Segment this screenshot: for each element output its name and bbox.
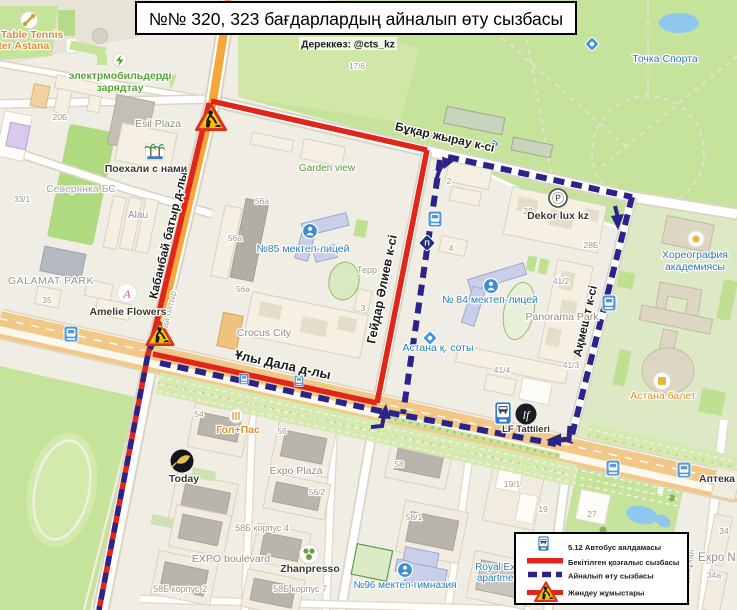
svg-text:A: A bbox=[122, 287, 131, 301]
svg-text:33/1: 33/1 bbox=[14, 194, 31, 204]
svg-text:54: 54 bbox=[194, 409, 204, 419]
svg-text:41/2: 41/2 bbox=[553, 276, 570, 286]
svg-text:Garden view: Garden view bbox=[299, 163, 356, 174]
svg-text:3: 3 bbox=[361, 303, 366, 313]
svg-text:58Б корпус 4: 58Б корпус 4 bbox=[235, 523, 289, 533]
svg-text:Астана қ. соты: Астана қ. соты bbox=[402, 342, 473, 354]
svg-text:Alau: Alau bbox=[128, 210, 148, 221]
svg-text:34: 34 bbox=[719, 526, 729, 536]
svg-text:Поехали с нами: Поехали с нами bbox=[105, 163, 188, 175]
svg-text:Expo N: Expo N bbox=[698, 552, 736, 564]
svg-text:Аптека: Аптека bbox=[699, 473, 735, 485]
svg-text:58Б корпус 7: 58Б корпус 7 bbox=[273, 584, 327, 594]
svg-text:Today: Today bbox=[169, 473, 199, 485]
svg-text:П: П bbox=[424, 239, 429, 248]
svg-text:58: 58 bbox=[394, 459, 404, 469]
svg-text:LF Tattileri: LF Tattileri bbox=[502, 424, 550, 435]
svg-text:58/1: 58/1 bbox=[406, 512, 423, 522]
svg-text:4: 4 bbox=[449, 243, 454, 253]
svg-text:41/3: 41/3 bbox=[563, 360, 580, 370]
svg-text:Dekor lux kz: Dekor lux kz bbox=[527, 210, 589, 222]
svg-text:№85 мектеп-лицей: №85 мектеп-лицей bbox=[257, 243, 350, 255]
svg-text:академиясы: академиясы bbox=[665, 261, 725, 273]
svg-text:Дереккөз: @cts_kz: Дереккөз: @cts_kz bbox=[301, 40, 395, 51]
svg-text:nter Astana: nter Astana bbox=[0, 40, 50, 52]
svg-text:EXPO boulevard: EXPO boulevard bbox=[192, 553, 270, 565]
svg-text:Panorama Park: Panorama Park bbox=[526, 311, 600, 323]
svg-text:5.12 Автобус аялдамасы: 5.12 Автобус аялдамасы bbox=[568, 543, 661, 552]
svg-text:Expo Plaza: Expo Plaza bbox=[269, 465, 322, 477]
svg-text:17/6: 17/6 bbox=[349, 62, 365, 71]
svg-text:2: 2 bbox=[447, 176, 452, 186]
svg-text:Астана балет: Астана балет bbox=[630, 390, 696, 402]
svg-text:Северянка БС: Северянка БС bbox=[46, 183, 116, 195]
svg-text:Бекітілген қозғалыс сызбасы: Бекітілген қозғалыс сызбасы bbox=[568, 558, 679, 567]
svg-text:28Б: 28Б bbox=[583, 240, 598, 250]
svg-text:56/2: 56/2 bbox=[309, 487, 326, 497]
svg-text:Crocus City: Crocus City bbox=[237, 327, 292, 339]
svg-text:Точка Спорта: Точка Спорта bbox=[632, 53, 698, 65]
svg-text:Хореография: Хореография bbox=[662, 249, 728, 261]
svg-text:Гол+Пас: Гол+Пас bbox=[216, 424, 260, 436]
svg-text:27: 27 bbox=[587, 509, 597, 519]
svg-text:58Б корпус 2: 58Б корпус 2 bbox=[153, 584, 207, 594]
svg-text:56а: 56а bbox=[255, 196, 269, 206]
svg-text:Amelie Flowers: Amelie Flowers bbox=[89, 306, 166, 318]
svg-text:зарядтау: зарядтау bbox=[97, 82, 144, 94]
svg-text:34a: 34a bbox=[707, 570, 721, 580]
svg-text:41/4: 41/4 bbox=[494, 365, 511, 375]
svg-text:Zhanpresso: Zhanpresso bbox=[280, 563, 340, 575]
svg-text:Жөндеу жұмыстары: Жөндеу жұмыстары bbox=[567, 589, 644, 598]
svg-text:№№ 320, 323 бағдарлардың айнал: №№ 320, 323 бағдарлардың айналып өту сыз… bbox=[149, 9, 563, 29]
svg-text:19/1: 19/1 bbox=[504, 479, 521, 489]
svg-text:Ⓟ: Ⓟ bbox=[552, 192, 564, 206]
svg-text:Терр: Терр bbox=[357, 265, 377, 275]
svg-text:20Б: 20Б bbox=[52, 112, 67, 122]
svg-text:№ 84 мектеп-лицей: № 84 мектеп-лицей bbox=[442, 294, 538, 306]
svg-text:56а: 56а bbox=[228, 233, 242, 243]
svg-text:56а: 56а bbox=[236, 284, 250, 294]
svg-text:19: 19 bbox=[538, 504, 548, 514]
svg-text:apartmen: apartmen bbox=[477, 573, 519, 584]
svg-text:56: 56 bbox=[277, 426, 287, 436]
svg-text:№96 мектеп-гимназия: №96 мектеп-гимназия bbox=[354, 580, 457, 591]
svg-text:Esil Plaza: Esil Plaza bbox=[135, 118, 181, 130]
svg-text:Айналып өту сызбасы: Айналып өту сызбасы bbox=[568, 572, 654, 581]
svg-text:35: 35 bbox=[42, 295, 52, 305]
svg-text:электрмобильдерді: электрмобильдерді bbox=[69, 70, 172, 82]
svg-text:GALAMAT PARK: GALAMAT PARK bbox=[8, 275, 94, 287]
